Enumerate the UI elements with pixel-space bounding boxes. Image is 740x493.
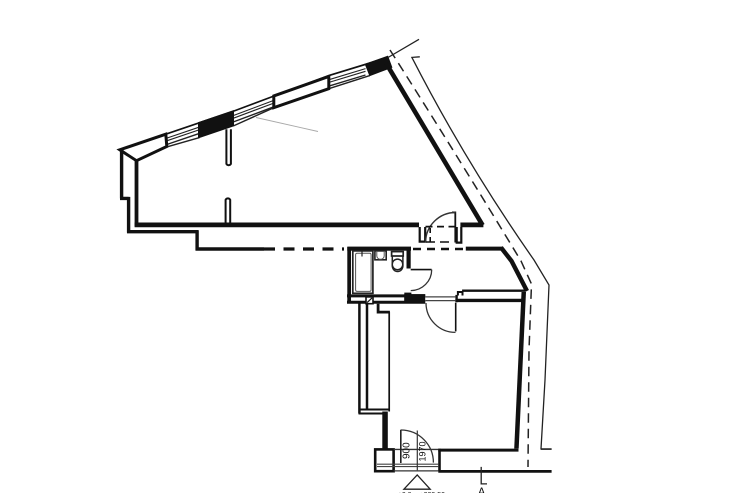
- svg-text:900: 900: [402, 442, 413, 459]
- svg-text:1970: 1970: [418, 441, 428, 461]
- svg-text:A: A: [478, 487, 486, 493]
